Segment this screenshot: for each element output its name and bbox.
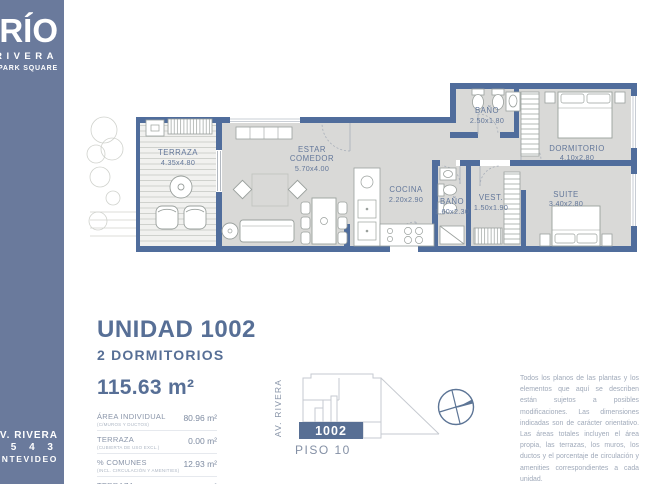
room-label-terraza: TERRAZA bbox=[158, 148, 198, 157]
brand-sidebar: BRÍO RIVERA by PARK SQUARE AV. RIVERA 2 … bbox=[0, 0, 64, 484]
spec-label: ÁREA INDIVIDUAL bbox=[97, 412, 166, 421]
spec-row-area-individual: ÁREA INDIVIDUAL (C/MUROS Y DUCTOS) 80.96… bbox=[97, 408, 217, 430]
terrace-fixtures bbox=[146, 119, 212, 136]
brand-byline: by PARK SQUARE bbox=[0, 65, 58, 72]
unit-total-area: 115.63 m² bbox=[97, 376, 272, 400]
room-dims-banio1: 2.50x1.80 bbox=[470, 116, 504, 125]
address-street: AV. RIVERA bbox=[0, 430, 58, 441]
brand-name: BRÍO bbox=[0, 14, 58, 49]
room-dims-banio2: 1.60x2.30 bbox=[435, 207, 469, 216]
disclaimer-text: Todos los planos de las plantas y los el… bbox=[520, 373, 639, 484]
room-label-dormitorio: DORMITORIO bbox=[549, 144, 605, 153]
room-dims-terraza: 4.35x4.80 bbox=[161, 158, 195, 167]
spec-label: % COMUNES bbox=[97, 458, 179, 467]
keyplan-diagram: 1002 bbox=[293, 366, 443, 451]
spec-label: TERRAZA bbox=[97, 435, 159, 444]
compass-icon bbox=[432, 383, 480, 431]
unit-info: UNIDAD 1002 2 DORMITORIOS 115.63 m² ÁREA… bbox=[97, 316, 272, 484]
room-label-estar2: COMEDOR bbox=[290, 154, 334, 163]
spec-value: 80.96 m² bbox=[183, 412, 217, 423]
unit-type: 2 DORMITORIOS bbox=[97, 347, 272, 363]
room-dims-vest: 1.50x1.90 bbox=[474, 203, 508, 212]
room-label-banio1: BAÑO bbox=[475, 106, 499, 115]
room-label-vest: VEST. bbox=[479, 193, 503, 202]
room-dims-estar: 5.70x4.00 bbox=[295, 164, 329, 173]
spec-row-terraza-cubierta: TERRAZA (CUBIERTA DE USO EXCL.) 0.00 m² bbox=[97, 430, 217, 453]
spec-value: 12.93 m² bbox=[183, 458, 217, 469]
keyplan-floor-label: PISO 10 bbox=[295, 443, 351, 457]
spec-row-comunes: % COMUNES (INCL. CIRCULACIÓN Y AMENITIES… bbox=[97, 453, 217, 476]
room-dims-suite: 3.40x2.80 bbox=[549, 199, 583, 208]
room-label-suite: SUITE bbox=[553, 190, 578, 199]
room-label-cocina: COCINA bbox=[389, 185, 423, 194]
garden-sketch bbox=[87, 117, 138, 245]
unit-specs: ÁREA INDIVIDUAL (C/MUROS Y DUCTOS) 80.96… bbox=[97, 408, 217, 484]
brand-logo: BRÍO RIVERA by PARK SQUARE bbox=[0, 14, 58, 72]
brand-sub: RIVERA bbox=[0, 51, 58, 62]
spec-sublabel: (C/MUROS Y DUCTOS) bbox=[97, 422, 166, 427]
spec-row-terraza-descubierta: TERRAZA (DESCUBIERTA DE USO EXCL.) 21.74… bbox=[97, 476, 217, 484]
address-number: 2 5 4 3 bbox=[0, 442, 58, 453]
keyplan-unit-number: 1002 bbox=[315, 424, 347, 438]
spec-sublabel: (INCL. CIRCULACIÓN Y AMENITIES) bbox=[97, 468, 179, 473]
room-label-estar: ESTAR bbox=[298, 145, 326, 154]
room-dims-cocina: 2.20x2.90 bbox=[389, 195, 423, 204]
keyplan-street-label: AV. RIVERA bbox=[273, 373, 283, 443]
unit-title: UNIDAD 1002 bbox=[97, 316, 272, 344]
brochure-page: TERRAZA 4.35x4.80 ESTAR COMEDOR 5.70x4.0… bbox=[0, 0, 645, 484]
spec-sublabel: (CUBIERTA DE USO EXCL.) bbox=[97, 445, 159, 450]
brand-address: AV. RIVERA 2 5 4 3 MONTEVIDEO bbox=[0, 430, 58, 464]
room-dims-dormitorio: 4.10x2.80 bbox=[560, 153, 594, 162]
address-city: MONTEVIDEO bbox=[0, 454, 58, 464]
spec-value: 0.00 m² bbox=[188, 435, 217, 446]
room-label-banio2: BAÑO bbox=[440, 197, 464, 206]
